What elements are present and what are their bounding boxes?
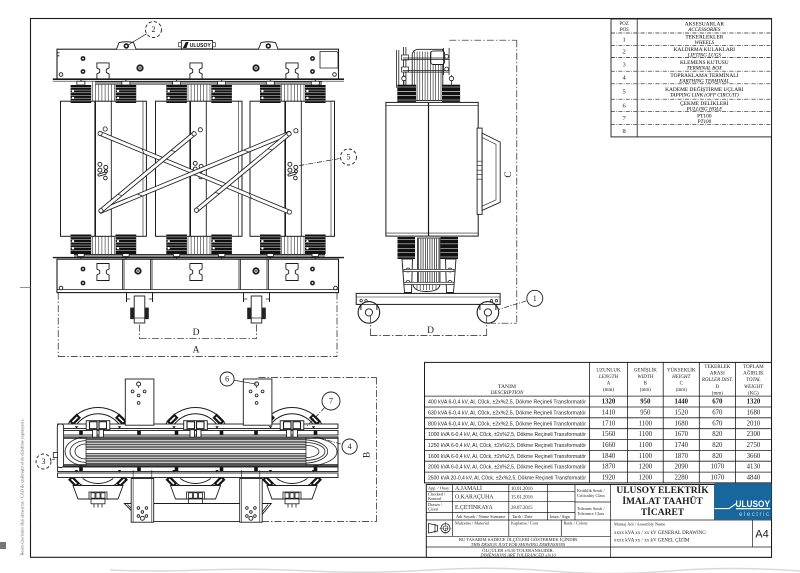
svg-text:1710: 1710 [602, 420, 616, 427]
svg-text:4: 4 [348, 442, 352, 451]
svg-text:1740: 1740 [674, 442, 688, 449]
svg-text:820: 820 [712, 431, 723, 438]
svg-text:WEIGHT: WEIGHT [744, 385, 764, 390]
svg-text:TAPPING LINK (OFF CIRCUIT): TAPPING LINK (OFF CIRCUIT) [670, 92, 739, 99]
svg-text:DIMENSIONS ARE TOLERANCED ±%10: DIMENSIONS ARE TOLERANCED ±%10 [479, 552, 556, 557]
svg-text:1200: 1200 [639, 464, 653, 471]
svg-text:xxxx kVA xx / xx kV GENERAL DR: xxxx kVA xx / xx kV GENERAL DRAWING [614, 531, 706, 536]
svg-text:LIFTING LUGS: LIFTING LUGS [687, 52, 722, 58]
svg-text:1410: 1410 [602, 410, 616, 417]
svg-text:Tolerance Class: Tolerance Class [577, 511, 605, 516]
svg-text:1250 kVA 6-0,4 kV, Al, C0ck, ±: 1250 kVA 6-0,4 kV, Al, C0ck, ±2x%2,5, Dö… [428, 443, 586, 449]
svg-text:D: D [193, 328, 200, 338]
svg-text:THIS DESIGN JUST FOR SHOWING D: THIS DESIGN JUST FOR SHOWING DIMENSIONS [471, 542, 566, 547]
svg-text:TEKERLEK: TEKERLEK [704, 365, 730, 370]
svg-text:2090: 2090 [674, 464, 688, 471]
svg-text:400 kVA 6-0,4 kV, Al, C0ck, ±2: 400 kVA 6-0,4 kV, Al, C0ck, ±2x%2,5, Dök… [428, 400, 586, 406]
svg-text:Adı Soyadı / Name Surname: Adı Soyadı / Name Surname [456, 514, 505, 519]
svg-text:670: 670 [712, 399, 723, 406]
svg-text:D: D [427, 326, 434, 336]
svg-text:YÜKSEKLİK: YÜKSEKLİK [667, 367, 696, 373]
svg-text:Renk / Colour: Renk / Colour [564, 521, 589, 526]
svg-text:1070: 1070 [711, 464, 725, 471]
svg-text:ULUSOY: ULUSOY [190, 43, 212, 49]
svg-text:TERMINAL BOX: TERMINAL BOX [687, 65, 723, 71]
svg-text:630 kVA 6-0,4 kV, Al, C0ck, ±2: 630 kVA 6-0,4 kV, Al, C0ck, ±2x%2,5, Dök… [428, 411, 586, 417]
svg-text:AĞIRLIK: AĞIRLIK [743, 371, 764, 377]
svg-text:2: 2 [622, 49, 625, 56]
svg-text:2000 kVA 6-0,4 kV, Al, C0ck, ±: 2000 kVA 6-0,4 kV, Al, C0ck, ±2x%2,5, Dö… [428, 465, 586, 471]
svg-text:1440: 1440 [674, 399, 688, 406]
svg-text:(mm): (mm) [640, 388, 651, 393]
svg-text:7: 7 [329, 397, 333, 406]
svg-text:6: 6 [225, 375, 229, 384]
svg-text:2280: 2280 [674, 475, 688, 482]
svg-text:POS: POS [619, 28, 630, 33]
svg-text:TOTAL: TOTAL [746, 378, 761, 383]
svg-text:1680: 1680 [674, 420, 688, 427]
svg-text:1560: 1560 [602, 431, 616, 438]
svg-text:İmza / Sign: İmza / Sign [550, 514, 571, 519]
svg-text:28.07.2015: 28.07.2015 [511, 506, 533, 511]
svg-text:(KG): (KG) [748, 391, 759, 396]
svg-text:Kontrol: Kontrol [428, 496, 442, 501]
svg-text:8: 8 [622, 128, 625, 135]
svg-text:1100: 1100 [639, 431, 653, 438]
svg-text:POZ: POZ [619, 22, 628, 27]
svg-text:1100: 1100 [639, 442, 653, 449]
svg-text:1870: 1870 [674, 453, 688, 460]
svg-text:Criticality Class: Criticality Class [577, 493, 605, 498]
svg-text:(mm): (mm) [712, 391, 723, 396]
svg-text:ARASI: ARASI [710, 372, 725, 377]
svg-text:10.01.2016: 10.01.2016 [511, 487, 533, 492]
svg-text:Çizen: Çizen [428, 507, 439, 512]
svg-text:A.JAMALİ: A.JAMALİ [455, 485, 482, 492]
svg-text:1000 kVA 6-0,4 kV, Al, C0ck, ±: 1000 kVA 6-0,4 kV, Al, C0ck, ±2x%2,5, Dö… [428, 432, 586, 438]
svg-text:O.KARAÇUHA: O.KARAÇUHA [455, 494, 494, 500]
svg-text:EARTHING TERMINAL: EARTHING TERMINAL [678, 79, 729, 85]
svg-text:(mm): (mm) [676, 388, 687, 393]
svg-text:D: D [716, 385, 720, 390]
svg-text:DESCRIPTION: DESCRIPTION [490, 390, 524, 396]
svg-text:Kaplama / Coat: Kaplama / Coat [511, 521, 539, 526]
svg-text:1520: 1520 [674, 410, 688, 417]
svg-text:2010: 2010 [747, 420, 761, 427]
svg-text:xxxx kVA xx / xx kV GENEL ÇİZİ: xxxx kVA xx / xx kV GENEL ÇİZİM [614, 537, 690, 543]
svg-text:Montaj Adı / Assembly Name: Montaj Adı / Assembly Name [614, 522, 665, 527]
svg-text:ACCESSORIES: ACCESSORIES [687, 27, 721, 33]
svg-text:2300: 2300 [747, 431, 761, 438]
svg-text:TOPLAM: TOPLAM [743, 365, 764, 370]
svg-text:(mm): (mm) [603, 388, 614, 393]
svg-text:UZUNLUK: UZUNLUK [596, 368, 621, 373]
svg-text:1070: 1070 [711, 475, 725, 482]
svg-text:5: 5 [347, 153, 351, 162]
svg-text:950: 950 [640, 399, 651, 406]
svg-text:670: 670 [712, 410, 723, 417]
svg-text:1100: 1100 [639, 420, 653, 427]
svg-text:1840: 1840 [602, 453, 616, 460]
svg-text:2500 kVA 20-0,4 kV, Al, C0ck,: 2500 kVA 20-0,4 kV, Al, C0ck, ±2x%2,5, D… [428, 476, 586, 482]
svg-text:1320: 1320 [747, 399, 761, 406]
svg-text:B: B [363, 452, 373, 458]
svg-text:PULLING HOLE: PULLING HOLE [685, 106, 723, 112]
svg-text:1680: 1680 [747, 410, 761, 417]
svg-text:A4: A4 [755, 529, 768, 541]
svg-text:WIDTH: WIDTH [637, 375, 653, 380]
svg-text:WHEELS: WHEELS [695, 40, 715, 46]
svg-text:Malzeme / Material: Malzeme / Material [455, 521, 490, 526]
svg-text:1660: 1660 [602, 442, 616, 449]
svg-text:3660: 3660 [747, 453, 761, 460]
svg-text:E.ÇETİNKAYA: E.ÇETİNKAYA [455, 504, 493, 511]
svg-text:1200: 1200 [639, 475, 653, 482]
svg-text:electric: electric [739, 512, 770, 518]
svg-text:4130: 4130 [747, 464, 761, 471]
svg-text:800 kVA 6-0,4 kV, Al, C0ck, ±2: 800 kVA 6-0,4 kV, Al, C0ck, ±2x%2,5, Dök… [428, 421, 586, 427]
svg-text:1320: 1320 [602, 399, 616, 406]
svg-text:3: 3 [42, 457, 46, 466]
svg-text:ULUSOY ELEKTRİK: ULUSOY ELEKTRİK [616, 484, 709, 496]
svg-text:1920: 1920 [602, 475, 616, 482]
svg-text:ROLLER DIST.: ROLLER DIST. [701, 378, 733, 383]
svg-text:820: 820 [712, 453, 723, 460]
svg-text:4840: 4840 [747, 475, 761, 482]
svg-text:2750: 2750 [747, 442, 761, 449]
svg-text:HEIGHT: HEIGHT [671, 375, 692, 380]
svg-text:Tarih / Date: Tarih / Date [512, 514, 533, 519]
svg-text:1100: 1100 [639, 453, 653, 460]
svg-text:1: 1 [622, 36, 625, 43]
svg-text:C: C [504, 171, 514, 177]
svg-text:LENGTH: LENGTH [598, 375, 619, 380]
svg-text:GENİŞLİK: GENİŞLİK [634, 367, 657, 373]
svg-text:15.01.2016: 15.01.2016 [511, 495, 533, 500]
svg-text:820: 820 [712, 442, 723, 449]
svg-text:950: 950 [640, 410, 651, 417]
svg-text:Resim üzerinden ölçü almayınız: Resim üzerinden ölçü almayınız / CAD ile… [20, 419, 25, 556]
svg-text:App. / Onay: App. / Onay [428, 485, 450, 490]
svg-text:1670: 1670 [674, 431, 688, 438]
svg-text:1870: 1870 [602, 464, 616, 471]
svg-text:670: 670 [712, 420, 723, 427]
svg-text:2: 2 [152, 25, 156, 34]
svg-text:TİCARET: TİCARET [641, 506, 685, 518]
svg-text:A: A [607, 382, 611, 387]
svg-text:5: 5 [622, 89, 625, 96]
svg-text:A: A [193, 346, 200, 356]
svg-text:PT100: PT100 [697, 119, 712, 125]
svg-text:3: 3 [622, 62, 625, 69]
svg-text:1: 1 [533, 294, 537, 303]
svg-text:1600 kVA 6-0,4 kV, Al, C0ck, ±: 1600 kVA 6-0,4 kV, Al, C0ck, ±2x%2,5, Dö… [428, 454, 586, 460]
